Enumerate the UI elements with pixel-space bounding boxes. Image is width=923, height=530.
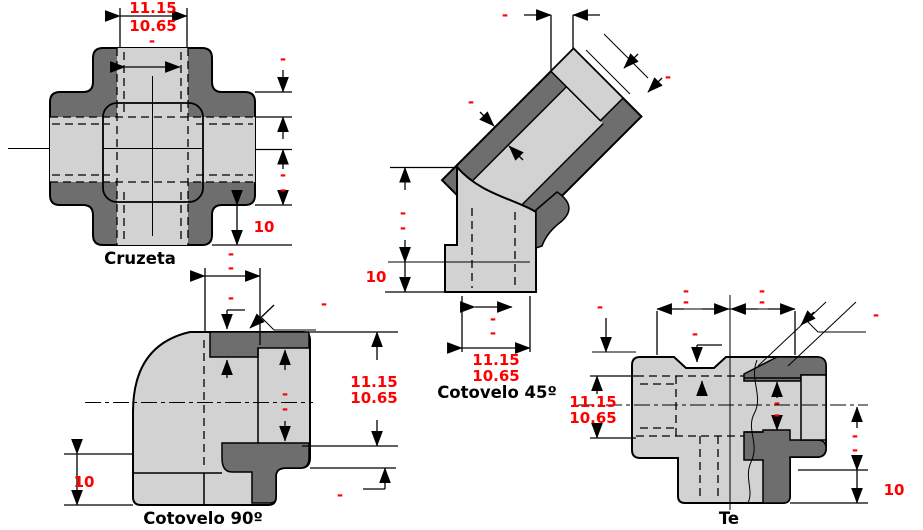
cotovelo90-body xyxy=(133,332,310,505)
cruzeta-dim-right-b: - xyxy=(280,181,286,199)
cotovelo90-dim-bore-b: - xyxy=(282,400,288,418)
te-dim-row2-left: - xyxy=(683,293,689,311)
te-dim-mid: - xyxy=(692,325,698,343)
cotovelo45-dim-wall: - xyxy=(468,93,474,111)
cruzeta-dim-nominal: - xyxy=(149,32,155,50)
cotovelo90-dim-thread-length: 10 xyxy=(74,473,95,491)
cotovelo45-dim-left-b: - xyxy=(400,219,406,237)
te-title: Te xyxy=(719,509,739,528)
fittings-drawing: 11.15 10.65 - - - - 10 Cruzeta xyxy=(0,0,923,530)
cotovelo45-dim-gap: - xyxy=(502,6,508,24)
cotovelo90-title: Cotovelo 90º xyxy=(143,509,263,528)
te-dim-right-b: - xyxy=(852,441,858,459)
drawing-canvas: 11.15 10.65 - - - - 10 Cruzeta xyxy=(0,0,923,530)
cotovelo45-dim-end: - xyxy=(665,68,671,86)
te-dim-bore-b: - xyxy=(774,406,780,424)
cruzeta-dim-thread-length: 10 xyxy=(254,218,275,236)
cruzeta-dim-max: 11.15 xyxy=(129,0,176,17)
cotovelo90-dim-leader: - xyxy=(321,295,327,313)
cotovelo90-dim-low: - xyxy=(337,486,343,504)
te-end-cap xyxy=(801,375,826,440)
cotovelo45-title: Cotovelo 45º xyxy=(437,383,557,402)
te-dim-thread-length: 10 xyxy=(884,481,905,499)
cruzeta-title: Cruzeta xyxy=(104,249,176,268)
te-dim-top-left: - xyxy=(597,298,603,316)
cotovelo90-drawing: - - - - - - 11.15 10.65 - 10 Cotovelo 90… xyxy=(64,245,398,528)
te-dim-min: 10.65 xyxy=(569,409,616,427)
te-dim-leader: - xyxy=(873,306,879,324)
cotovelo45-dim-bore-b: - xyxy=(490,324,496,342)
cruzeta-dim-right-top: - xyxy=(280,50,286,68)
te-dim-row2-right: - xyxy=(759,293,765,311)
cotovelo45-drawing: - - - - - 10 - - 11.15 10.65 Cotovelo 45… xyxy=(366,6,672,402)
cotovelo90-dim-top-c: - xyxy=(228,289,234,307)
te-drawing: - - - - - - - 11.15 10.65 - - - - 10 Te xyxy=(569,282,904,528)
cruzeta-drawing: 11.15 10.65 - - - - 10 Cruzeta xyxy=(8,0,292,268)
cotovelo90-dim-min: 10.65 xyxy=(350,389,397,407)
cotovelo45-dim-thread-length: 10 xyxy=(366,268,387,286)
cotovelo90-dim-top-b: - xyxy=(228,259,234,277)
